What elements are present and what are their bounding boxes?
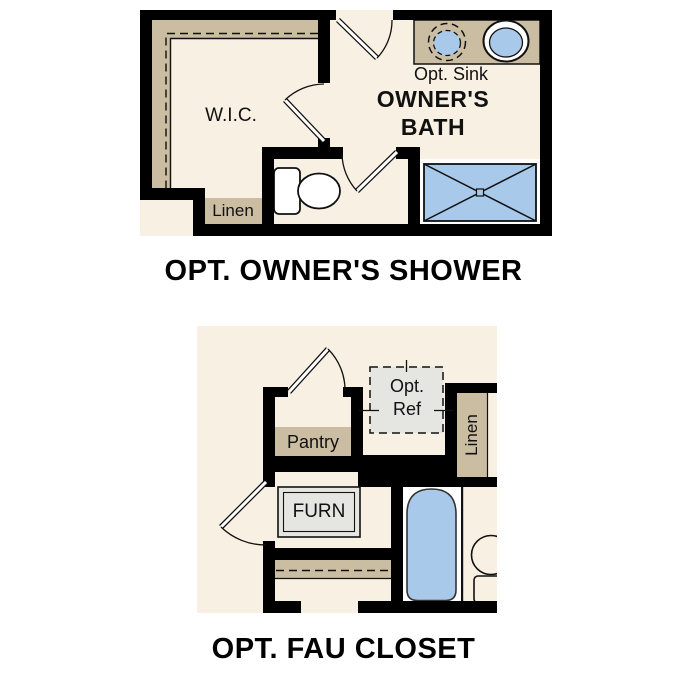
wic-label: W.I.C. [181,105,281,127]
opt-ref-line1: Opt. [357,375,457,398]
opt-ref-label: Opt. Ref [357,375,457,420]
linen-label: Linen [183,201,283,221]
owners-bath-line2: BATH [343,113,523,141]
sink-icon [484,21,529,62]
fau-closet-plan: Pantry Opt. Ref Linen FURN [197,326,497,613]
opt-sink-label: Opt. Sink [381,64,521,85]
floor-plan-page: W.I.C. Linen Opt. Sink OWNER'S BATH OPT.… [0,0,687,687]
tub-alcove [403,487,463,601]
owners-shower-plan: W.I.C. Linen Opt. Sink OWNER'S BATH [140,10,552,236]
vanity-counter [414,20,540,64]
plan-title-fau-closet: OPT. FAU CLOSET [0,632,687,666]
pantry-label: Pantry [253,432,373,453]
linen-label: Linen [462,395,482,475]
shower-icon [420,159,540,224]
plan-title-owners-shower: OPT. OWNER'S SHOWER [0,254,687,288]
bathtub-icon [407,489,456,601]
furnace-label: FURN [259,501,379,523]
fau-closet-drawing [197,326,497,613]
owners-bath-label: OWNER'S BATH [343,85,523,141]
closet-shelf [275,560,391,578]
owners-bath-line1: OWNER'S [343,85,523,113]
opt-ref-line2: Ref [357,398,457,421]
